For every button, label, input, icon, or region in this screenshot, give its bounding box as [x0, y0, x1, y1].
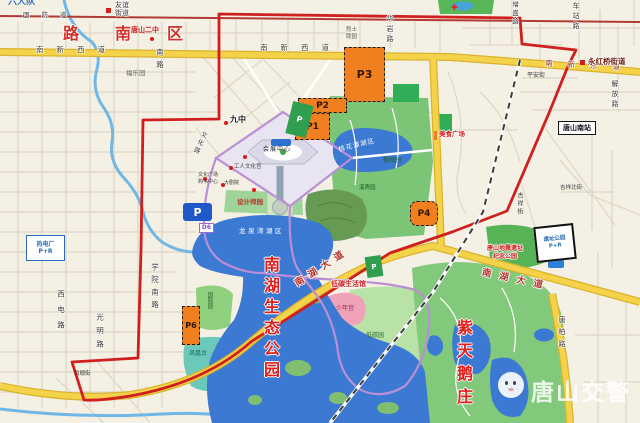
poi-label-gongrenwenhuagong: 工人文化宫	[234, 165, 262, 171]
mascot-mouth-icon	[508, 388, 514, 391]
poi-label-ditanshenghuoguan: 低碳生活馆	[331, 281, 366, 288]
road-label-xueyuannanlu: 学院南路	[151, 263, 159, 313]
road-label-pinganjie: 平安街	[527, 73, 545, 79]
road-label-huayanlu: 华岩路	[386, 15, 393, 45]
subdistrict-marker	[106, 8, 111, 13]
subdistrict-label-yonghongqiao: 永红桥街道	[588, 58, 626, 66]
poi-label-tangshanerzhong: 唐山二中	[131, 27, 159, 34]
parking-green-2: P	[365, 255, 384, 278]
plaza-badge	[271, 139, 291, 146]
brigade-label: 六大队	[8, 0, 35, 7]
road-label-zengshenglu: 增盛路	[511, 1, 518, 27]
parking-blue: P	[183, 203, 212, 221]
park-label-zhiwuyuan: 植物园	[383, 158, 401, 164]
nanhu-park-label: 南湖生态公园	[262, 256, 278, 382]
lake-label-longquanwan: 龙泉湾湖区	[239, 228, 284, 235]
poi-dot	[252, 188, 256, 192]
international-garden-area	[196, 286, 233, 330]
poi-label-fuleyuan: 福乐园	[126, 70, 146, 77]
road-label-nanlu: 南路	[156, 48, 164, 73]
watermark: 唐山交警	[531, 373, 631, 407]
park-label-shaoniangong: 少年宫	[336, 306, 354, 312]
road-label-chezhanlu: 车站路	[572, 2, 579, 32]
road-label-xidianlu: 西电路	[57, 290, 65, 337]
d6-badge: D6	[199, 223, 214, 233]
parking-p6: P6	[182, 306, 200, 345]
road-label-heshunjie: 和顺街	[74, 372, 91, 378]
park-label-fenghuangtai: 凤凰台	[189, 351, 207, 357]
parking-p3: P3	[344, 47, 385, 102]
poi-dot	[243, 155, 247, 159]
ruins-park-pr-box: 遗址公园 P+R	[533, 223, 577, 263]
subdistrict-label-youyi: 友谊街道	[115, 1, 131, 18]
road-label-nanxinxidao-2: 南新西道	[260, 44, 342, 52]
road-label-jixiangbeijie: 吉祥北街	[560, 186, 582, 192]
poi-label-lieshilingyuan: 烈士陵园	[346, 27, 360, 40]
road-label-tangbailu: 唐柏路	[558, 316, 565, 352]
poi-label-huizhanzhongxin: 会展中心	[263, 147, 291, 153]
park-label-guojiyuan: 国际园	[206, 292, 212, 309]
poi-dot	[224, 121, 228, 125]
food-plaza-marker	[434, 131, 437, 140]
road-label-jixiangjie: 吉祥街	[516, 192, 522, 216]
parking-p4: P4	[410, 201, 438, 226]
poi-label-jiuzhong: 九中	[230, 116, 246, 124]
poi-label-meishiguangchang: 美食广场	[439, 131, 465, 138]
traffic-police-mascot-icon	[498, 372, 524, 398]
road-label-nanxinxidao: 南新西道	[36, 46, 118, 54]
hospital-cross-icon: ✚	[451, 4, 458, 12]
park-label-shejishiyuan: 设计师园	[237, 199, 263, 206]
poi-label-earthquake-park: 唐山地震遗址 纪念公园	[487, 245, 523, 261]
tangshan-south-station-box: 唐山南站	[558, 121, 596, 135]
map-canvas	[0, 0, 640, 423]
park-label-ditanyuan: 低碳园	[366, 333, 384, 339]
swan-lake-3	[534, 329, 554, 342]
poi-label-dajuyuan: 大剧院	[224, 181, 239, 186]
poi-dot	[229, 166, 233, 170]
poi-label-wenhuaguangchang: 文化广场 购书中心	[198, 172, 218, 185]
purple-swan-label: 紫天鹅庄	[455, 319, 471, 411]
thermal-plant-pr-box: 热电厂 P+R	[26, 235, 65, 261]
mascot-eye-icon	[513, 381, 516, 385]
road-label-guangminglu: 光明路	[96, 313, 104, 354]
road-label-jiefanglu: 解放路	[611, 80, 618, 110]
mascot-eye-icon	[505, 381, 508, 385]
road-label-guofangdao: 国防道	[23, 12, 79, 19]
tangshan-nanhu-map: P3 P2 P1 P4 P6 P P P 热电厂 P+R 遗址公园 P+R 唐山…	[0, 0, 640, 423]
park-label-xixiuyuan: 溪秀园	[359, 186, 376, 192]
monument	[277, 166, 284, 200]
